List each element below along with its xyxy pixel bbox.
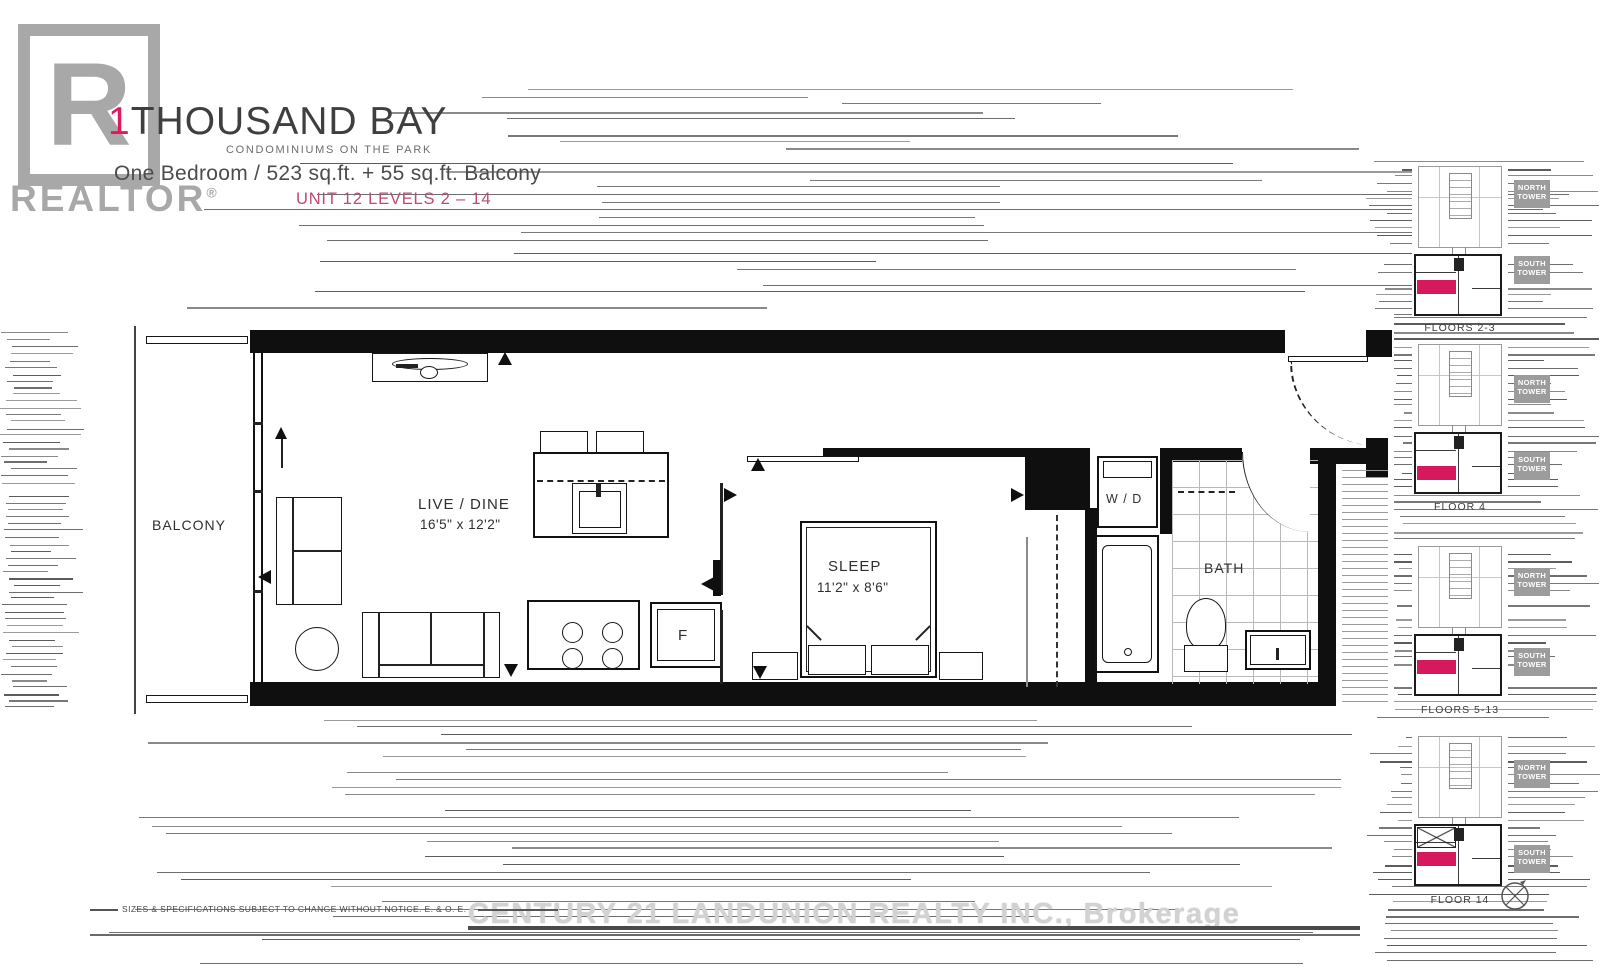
scan-line — [507, 118, 1015, 119]
keyplan-unit-highlight — [1417, 280, 1456, 294]
scan-line — [1375, 532, 1583, 534]
keyplan-unit-highlight — [1417, 852, 1456, 866]
sleep-label: SLEEP — [828, 558, 881, 575]
sofa-arm-right — [483, 612, 485, 678]
scan-line — [5, 618, 66, 619]
window-mullion — [253, 590, 263, 593]
hood-fixture-mark — [396, 364, 418, 368]
scan-line — [320, 261, 876, 262]
disclaimer-text: SIZES & SPECIFICATIONS SUBJECT TO CHANGE… — [122, 904, 466, 914]
scan-line — [13, 393, 60, 394]
keyplan-north-tower — [1418, 166, 1502, 248]
scan-line — [11, 551, 51, 552]
scan-line — [2, 483, 75, 484]
title-accent: 1 — [108, 100, 131, 143]
scan-line — [6, 558, 75, 559]
keyplan-core — [1449, 173, 1472, 219]
vanity-faucet — [1276, 648, 1279, 660]
scan-line — [1391, 930, 1557, 931]
wall-block-sleep-wd — [1025, 448, 1090, 510]
scan-line — [810, 180, 1262, 181]
scan-bar — [90, 934, 1360, 936]
corridor-hatch — [1342, 470, 1388, 702]
scan-line — [11, 597, 53, 598]
south-tower-badge: SOUTH TOWER — [1514, 648, 1550, 676]
keyplan-north-tower — [1418, 736, 1502, 818]
bathtub-inner — [1102, 545, 1152, 663]
keyplan-unit-highlight — [1417, 466, 1456, 480]
scan-line — [12, 346, 78, 347]
scan-line — [1, 456, 57, 457]
north-tower-badge: NORTH TOWER — [1514, 375, 1550, 403]
sleep-dim: 11'2" x 8'6" — [817, 580, 889, 595]
scan-line — [441, 734, 1352, 735]
scan-line — [152, 826, 1122, 827]
wall-top — [250, 330, 1285, 353]
faucet — [596, 484, 601, 497]
scan-line — [2, 604, 67, 605]
scan-line — [599, 217, 975, 218]
sofa-cushion-split — [430, 612, 432, 666]
stool — [540, 431, 588, 453]
scan-line — [12, 680, 47, 682]
scan-line — [1375, 952, 1556, 953]
scan-line — [13, 375, 61, 376]
keyplan-floors-5-13 — [1412, 546, 1508, 696]
scan-line — [10, 545, 69, 546]
washer-dryer-label: W / D — [1106, 492, 1142, 506]
scan-line — [427, 841, 1000, 842]
scan-line — [13, 686, 67, 687]
stool — [596, 431, 644, 453]
scan-line — [8, 509, 63, 510]
scan-line — [0, 408, 81, 409]
balcony-rail-top — [146, 336, 248, 344]
scan-line — [6, 400, 77, 401]
scan-line — [5, 537, 60, 538]
keyplan-stair — [1454, 436, 1464, 449]
scan-line — [1391, 495, 1580, 496]
scan-line — [7, 429, 83, 430]
compass-icon — [1496, 872, 1536, 914]
floorplan-sheet: R REALTOR® 1THOUSAND BAY CONDOMINIUMS ON… — [0, 0, 1600, 972]
page-title: 1THOUSAND BAY — [108, 100, 448, 144]
scan-line — [148, 742, 1049, 744]
registered-mark: ® — [206, 185, 219, 201]
scan-line — [1, 332, 68, 333]
scan-line — [299, 225, 984, 226]
sofa-arm-left — [378, 612, 380, 678]
scan-line — [345, 794, 1315, 795]
scan-line — [3, 632, 80, 633]
scan-line — [6, 653, 63, 654]
scan-line — [396, 779, 1342, 780]
scan-line — [4, 529, 83, 530]
marker-triangle — [751, 458, 765, 471]
scan-line — [11, 666, 57, 667]
scan-line — [3, 659, 56, 660]
keyplan-floor-14 — [1412, 736, 1508, 886]
balcony-label: BALCONY — [152, 517, 226, 533]
keyplan-stair — [1454, 638, 1464, 651]
scan-line — [1, 475, 68, 476]
scan-line — [602, 202, 1000, 203]
scan-line — [315, 291, 1305, 292]
stove-burner — [562, 648, 583, 669]
wd-door-dashes — [1178, 491, 1235, 493]
pillow — [871, 645, 929, 675]
scan-line — [763, 285, 1445, 286]
scan-line — [181, 879, 911, 880]
scan-line — [7, 381, 54, 382]
scan-line — [11, 468, 76, 469]
keyplan-core — [1449, 351, 1472, 397]
keyplan-caption: FLOORS 5-13 — [1398, 704, 1522, 716]
balcony-rail-bottom — [146, 695, 248, 703]
hood-fixture-knob — [420, 366, 438, 379]
scan-line — [445, 810, 971, 811]
scan-line — [1374, 161, 1583, 162]
marker-triangle — [258, 570, 271, 584]
scan-line — [324, 720, 1037, 721]
stove-burner — [562, 622, 583, 643]
scan-line — [187, 307, 768, 309]
scan-line — [503, 864, 1240, 865]
scan-line — [9, 592, 83, 593]
scan-line — [482, 97, 808, 98]
scan-line — [1373, 538, 1575, 539]
scan-line — [425, 856, 1003, 857]
scan-line — [521, 232, 1497, 233]
wall-partition-lower — [720, 610, 723, 684]
scan-line — [1403, 523, 1575, 524]
scan-line — [12, 646, 63, 647]
scan-line — [331, 886, 1272, 887]
keyplan-south-tower — [1414, 432, 1502, 494]
scan-line — [446, 171, 1457, 173]
disclaimer-rule-right — [478, 909, 558, 911]
keyplan-south-tower — [1414, 824, 1502, 886]
scan-line — [139, 817, 1239, 818]
fridge-label: F — [678, 627, 688, 644]
scan-line — [1384, 338, 1599, 340]
scan-line — [9, 448, 69, 450]
scan-line — [1385, 923, 1553, 924]
scan-line — [8, 523, 61, 524]
scan-line — [11, 353, 73, 354]
scan-line — [1377, 717, 1549, 718]
scan-line — [389, 112, 983, 114]
scan-line — [14, 387, 53, 389]
keyplan-core — [1449, 743, 1472, 789]
keyplan-caption: FLOORS 2-3 — [1398, 322, 1522, 334]
scan-line — [6, 503, 66, 504]
scan-line — [11, 420, 64, 421]
north-arrow-head — [275, 427, 287, 439]
stove-burner — [602, 622, 623, 643]
armchair-cushion-split — [292, 550, 342, 552]
marker-triangle — [498, 352, 512, 365]
scan-line — [7, 339, 50, 340]
scan-line — [14, 585, 60, 586]
bathtub-drain — [1124, 648, 1132, 656]
pillow — [808, 645, 866, 675]
scan-line — [347, 772, 949, 773]
stove — [527, 600, 640, 670]
window-mullion — [253, 490, 263, 493]
scan-line — [1376, 317, 1587, 318]
north-tower-badge: NORTH TOWER — [1514, 568, 1550, 596]
scan-line — [8, 565, 57, 566]
keyplan-south-tower — [1414, 254, 1502, 316]
scan-line — [1388, 701, 1598, 702]
marker-triangle — [504, 664, 518, 677]
disclaimer-rule-left — [90, 909, 118, 911]
marker-triangle — [1011, 488, 1024, 502]
scan-line — [9, 578, 73, 580]
keyplan-floors-2-3 — [1412, 166, 1508, 316]
south-tower-badge: SOUTH TOWER — [1514, 452, 1550, 480]
keyplan-crossed-area — [1417, 827, 1456, 848]
scan-line — [5, 706, 54, 707]
closet-slider — [1026, 537, 1028, 687]
scan-line — [332, 787, 1341, 788]
scan-line — [560, 141, 911, 142]
scan-line — [514, 253, 1457, 254]
scan-line — [842, 103, 1102, 104]
scan-line — [9, 496, 69, 497]
scan-line — [466, 749, 1021, 750]
live-dine-dim: 16'5" x 12'2" — [420, 517, 501, 532]
north-tower-badge: NORTH TOWER — [1514, 760, 1550, 788]
keyplan-caption: FLOOR 4 — [1398, 501, 1522, 513]
marker-triangle — [724, 488, 737, 502]
live-dine-label: LIVE / DINE — [418, 496, 510, 513]
marker-triangle — [753, 666, 767, 679]
scan-line — [0, 434, 81, 435]
keyplan-north-tower — [1418, 546, 1502, 628]
scan-line — [9, 640, 55, 641]
closet-dashed-line — [1056, 515, 1058, 687]
marker-triangle — [701, 577, 714, 591]
scan-line — [3, 442, 60, 443]
scan-line — [5, 612, 65, 613]
keyplan-stair — [1454, 258, 1464, 271]
scan-line — [327, 240, 987, 241]
keyplan-north-tower — [1418, 344, 1502, 426]
island-counter-dashes — [537, 480, 665, 482]
north-tower-badge: NORTH TOWER — [1514, 180, 1550, 208]
scan-line — [200, 963, 1303, 964]
wall-bath-right — [1318, 460, 1336, 706]
scan-line — [3, 571, 49, 572]
scan-line — [1387, 960, 1593, 961]
scan-line — [597, 186, 1000, 187]
scan-line — [508, 135, 1179, 137]
south-tower-badge: SOUTH TOWER — [1514, 845, 1550, 873]
scan-line — [528, 89, 1293, 90]
scan-line — [357, 726, 1191, 727]
keyplan-core — [1449, 553, 1472, 599]
unit-levels-line: UNIT 12 LEVELS 2 – 14 — [296, 190, 491, 209]
toilet-bowl — [1186, 598, 1226, 650]
scan-line — [4, 461, 47, 463]
wall-corner-top-right — [1366, 330, 1392, 357]
washer-dryer-drawer — [1103, 461, 1152, 478]
toilet-tank — [1184, 645, 1228, 672]
balcony-rail-left — [134, 326, 136, 714]
scan-line — [786, 148, 1359, 150]
wall-partition-thick — [713, 560, 721, 596]
scan-line — [737, 269, 1297, 270]
nightstand — [939, 652, 983, 680]
scan-line — [6, 414, 61, 415]
round-table — [295, 627, 339, 671]
scan-line — [166, 833, 1172, 834]
scan-line — [6, 516, 70, 517]
scan-bar-dark — [468, 926, 1360, 930]
scan-line — [1386, 916, 1579, 918]
unit-spec-line: One Bedroom / 523 sq.ft. + 55 sq.ft. Bal… — [114, 162, 541, 186]
scan-line — [383, 756, 1027, 757]
north-arrow-shaft — [281, 438, 283, 468]
scan-line — [5, 367, 57, 368]
scan-line — [4, 694, 59, 696]
stove-burner — [602, 648, 623, 669]
wall-bottom — [250, 682, 1336, 706]
scan-line — [10, 361, 50, 362]
scan-line — [1387, 945, 1587, 946]
scan-line — [317, 194, 1570, 195]
scan-line — [262, 939, 1301, 940]
keyplan-south-tower — [1414, 634, 1502, 696]
scan-line — [1400, 516, 1565, 517]
scan-line — [1392, 886, 1587, 887]
page-subtitle: CONDOMINIUMS ON THE PARK — [226, 144, 432, 156]
keyplan-floor-4 — [1412, 344, 1508, 494]
scan-line — [1384, 938, 1557, 939]
bath-label: BATH — [1204, 560, 1244, 576]
keyplan-unit-highlight — [1417, 660, 1456, 674]
scan-line — [9, 700, 67, 702]
south-tower-badge: SOUTH TOWER — [1514, 256, 1550, 284]
scan-line — [7, 625, 63, 626]
window-mullion — [253, 422, 263, 425]
scan-line — [1, 674, 52, 675]
window-wall — [253, 333, 263, 705]
scan-line — [157, 872, 1150, 873]
scan-line — [512, 847, 1332, 849]
